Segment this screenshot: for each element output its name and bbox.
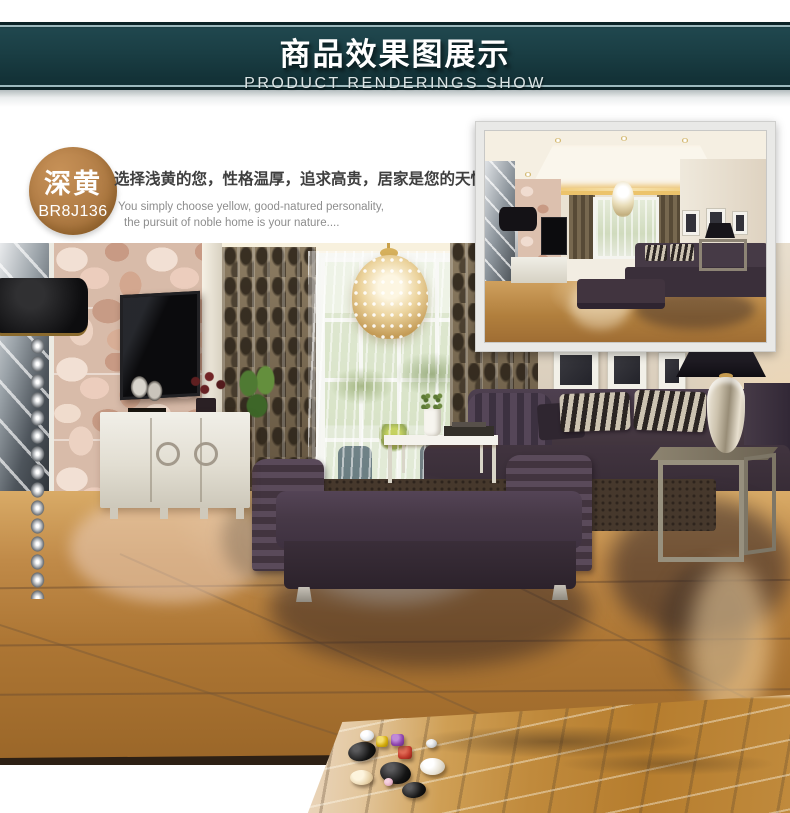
curtain-left xyxy=(569,195,595,259)
cabinet-ring-handle xyxy=(194,442,218,466)
gem-stone-red xyxy=(398,746,412,759)
wall-art-frame xyxy=(732,211,748,235)
coffee-table-leg xyxy=(480,443,483,473)
banner-subtitle: PRODUCT RENDERINGS SHOW xyxy=(0,75,790,93)
recessed-spotlight xyxy=(555,138,561,143)
badge-color-name: 深黄 xyxy=(29,162,117,201)
floor-lamp-shade xyxy=(0,278,88,336)
table-books xyxy=(444,426,494,436)
coffee-table xyxy=(384,435,498,445)
striped-cushion xyxy=(633,390,706,432)
cabinet-door-seam xyxy=(150,418,152,502)
cabinet-leg xyxy=(160,508,168,519)
tv-cabinet xyxy=(100,412,250,508)
intro-headline: 选择浅黄的您，性格温厚，追求高贵，居家是您的天性。 xyxy=(114,167,484,189)
gem-stone-black xyxy=(346,739,377,763)
wall-mounted-tv xyxy=(541,217,567,255)
coffee-table-leg xyxy=(388,445,392,483)
gem-stone-yellow xyxy=(376,736,388,747)
striped-cushion xyxy=(559,392,630,432)
banner-title: 商品效果图展示 xyxy=(0,29,790,74)
wall-art-frame xyxy=(553,348,599,392)
inset-photo-frame xyxy=(475,121,776,352)
table-vase xyxy=(424,407,441,436)
intro-caption-line2: the pursuit of noble home is your nature… xyxy=(124,217,339,229)
intro-caption-line1: You simply choose yellow, good-natured p… xyxy=(118,201,384,213)
elephant-figurines xyxy=(128,370,166,412)
bench-foot xyxy=(296,587,312,602)
table-lamp-shade xyxy=(705,223,735,238)
floor-lamp-crystal-pole xyxy=(30,337,45,599)
gem-stone-silver xyxy=(426,739,437,748)
recessed-spotlight xyxy=(682,138,688,143)
floor-lamp-shade xyxy=(499,207,537,231)
flower-arrangement xyxy=(184,367,230,399)
product-detail-image: 商品效果图展示 PRODUCT RENDERINGS SHOW 深黄 BR8J1… xyxy=(0,0,790,813)
tv-cabinet xyxy=(511,257,567,283)
crystal-chandelier xyxy=(612,181,634,217)
bench xyxy=(577,279,665,309)
cabinet-leg xyxy=(236,508,244,519)
inset-photo-living-room xyxy=(484,130,767,343)
gem-stone-cream xyxy=(350,770,373,785)
bench-base xyxy=(284,541,576,589)
wall-art-frame xyxy=(607,349,647,391)
striped-cushion xyxy=(645,245,667,261)
table-books xyxy=(452,422,486,427)
striped-cushion xyxy=(670,244,694,261)
cabinet-ring-handle xyxy=(156,442,180,466)
recessed-spotlight xyxy=(621,136,627,141)
vase-plant-sprig xyxy=(420,393,444,409)
side-table-frame xyxy=(744,453,776,555)
section-banner: 商品效果图展示 PRODUCT RENDERINGS SHOW xyxy=(0,22,790,90)
recessed-spotlight xyxy=(525,172,531,177)
gem-stone-purple xyxy=(391,734,404,746)
side-table xyxy=(699,239,747,271)
side-table-frame xyxy=(658,460,744,562)
gem-stone-pink xyxy=(384,778,393,786)
bench-foot xyxy=(552,585,568,600)
wall-art-frame xyxy=(682,210,700,236)
cabinet-leg xyxy=(110,508,118,519)
gem-stone-crystal xyxy=(360,730,374,741)
cabinet-leg xyxy=(200,508,208,519)
badge-model-code: BR8J136 xyxy=(29,203,117,221)
gem-stone-black xyxy=(401,781,426,799)
product-color-badge: 深黄 BR8J136 xyxy=(29,147,117,235)
gem-stone-pearl xyxy=(420,758,445,775)
coffee-table-leg xyxy=(402,443,405,473)
coffee-table-leg xyxy=(492,445,496,483)
crystal-chandelier xyxy=(352,255,428,339)
